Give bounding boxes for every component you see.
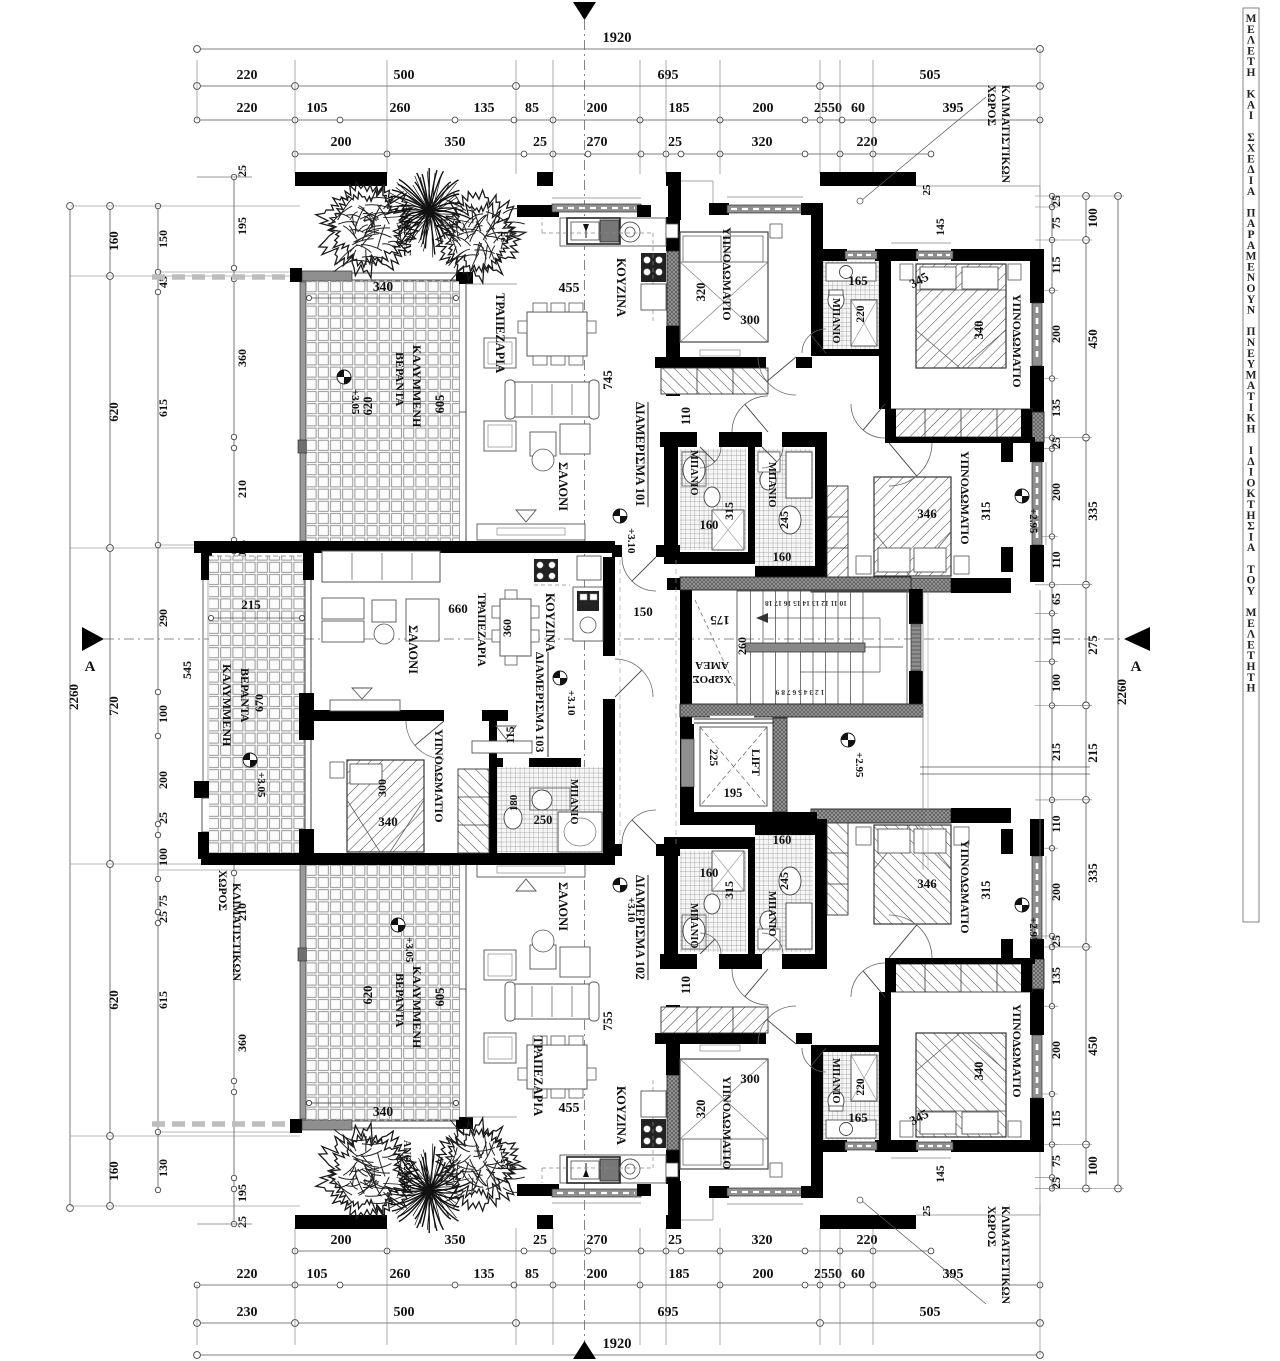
svg-text:25: 25	[235, 1216, 249, 1228]
svg-text:ΜΠΑΝΙΟ: ΜΠΑΝΙΟ	[688, 903, 699, 949]
svg-text:220: 220	[237, 101, 258, 116]
svg-text:340: 340	[373, 279, 394, 294]
svg-text:145: 145	[935, 218, 947, 236]
svg-text:340: 340	[972, 1062, 986, 1081]
svg-text:+3.05: +3.05	[403, 937, 415, 963]
svg-text:Ι: Ι	[1249, 110, 1254, 122]
svg-text:ΤΡΑΠΕΖΑΡΙΑ: ΤΡΑΠΕΖΑΡΙΑ	[531, 1036, 545, 1116]
svg-text:360: 360	[235, 349, 249, 367]
svg-text:ΥΠΝΟΔΩΜΑΤΙΟ: ΥΠΝΟΔΩΜΑΤΙΟ	[720, 227, 734, 321]
svg-text:ΑΝΘΩΝΑΣ: ΑΝΘΩΝΑΣ	[401, 1140, 412, 1192]
svg-text:200: 200	[1049, 1041, 1063, 1059]
svg-text:25: 25	[668, 1233, 682, 1248]
svg-text:695: 695	[658, 68, 679, 83]
svg-text:315: 315	[979, 502, 993, 521]
svg-text:346: 346	[917, 506, 937, 521]
svg-text:60: 60	[851, 1267, 865, 1282]
svg-text:+2.95: +2.95	[1027, 508, 1039, 534]
svg-text:ΚΛΙΜΑΤΙΣΤΙΚΩΝ: ΚΛΙΜΑΤΙΣΤΙΚΩΝ	[230, 883, 242, 982]
svg-text:ΧΩΡΟΣ: ΧΩΡΟΣ	[216, 870, 228, 911]
svg-text:260: 260	[735, 637, 749, 655]
svg-text:65: 65	[1049, 593, 1063, 605]
svg-text:60: 60	[851, 101, 865, 116]
svg-text:745: 745	[600, 370, 615, 390]
svg-text:505: 505	[920, 1305, 941, 1320]
svg-text:200: 200	[1049, 325, 1063, 343]
svg-text:85: 85	[525, 1267, 539, 1282]
svg-text:220: 220	[237, 1267, 258, 1282]
svg-text:115: 115	[1049, 1110, 1063, 1127]
svg-text:A: A	[85, 659, 96, 675]
svg-text:670: 670	[252, 694, 266, 712]
svg-text:160: 160	[773, 833, 792, 847]
svg-text:110: 110	[1049, 815, 1063, 832]
svg-text:ΜΠΑΝΙΟ: ΜΠΑΝΙΟ	[766, 891, 777, 937]
svg-text:100: 100	[1085, 1156, 1100, 1176]
svg-text:25: 25	[1049, 195, 1063, 207]
svg-text:25: 25	[1049, 935, 1063, 947]
svg-text:620: 620	[106, 402, 121, 422]
svg-text:10 11 12 13 14 15 16 17 18: 10 11 12 13 14 15 16 17 18	[765, 599, 847, 608]
svg-text:Υ: Υ	[1247, 585, 1256, 597]
svg-text:720: 720	[106, 696, 121, 716]
svg-text:ΚΛΙΜΑΤΙΣΤΙΚΩΝ: ΚΛΙΜΑΤΙΣΤΙΚΩΝ	[999, 85, 1011, 184]
svg-text:505: 505	[920, 68, 941, 83]
svg-text:185: 185	[669, 1267, 690, 1282]
svg-text:315: 315	[722, 502, 736, 520]
svg-text:346: 346	[917, 876, 937, 891]
svg-text:+2.95: +2.95	[853, 752, 865, 778]
svg-text:135: 135	[1049, 967, 1063, 985]
svg-text:2550: 2550	[814, 1267, 842, 1282]
svg-text:ΥΠΝΟΔΩΜΑΤΙΟ: ΥΠΝΟΔΩΜΑΤΙΟ	[1010, 294, 1024, 388]
svg-text:350: 350	[445, 135, 466, 150]
svg-text:ΣΑΛΟΝΙ: ΣΑΛΟΝΙ	[556, 882, 570, 931]
svg-text:75: 75	[1049, 217, 1063, 229]
svg-text:Α: Α	[1247, 186, 1256, 198]
svg-text:160: 160	[700, 518, 719, 532]
svg-text:110: 110	[679, 976, 693, 994]
svg-text:545: 545	[180, 661, 194, 679]
svg-text:25: 25	[921, 1205, 933, 1217]
svg-text:ΔΙΑΜΕΡΙΣΜΑ 101: ΔΙΑΜΕΡΙΣΜΑ 101	[633, 402, 647, 507]
svg-text:395: 395	[943, 1267, 964, 1282]
svg-text:360: 360	[235, 1034, 249, 1052]
svg-text:ΒΕΡΑΝΤΑ: ΒΕΡΑΝΤΑ	[393, 973, 407, 1028]
svg-text:605: 605	[433, 988, 447, 1007]
svg-text:25: 25	[156, 812, 170, 824]
svg-text:2260: 2260	[66, 684, 81, 710]
svg-text:ΜΠΑΝΙΟ: ΜΠΑΝΙΟ	[568, 779, 579, 825]
svg-text:Ν: Ν	[1247, 305, 1256, 317]
svg-text:200: 200	[753, 101, 774, 116]
svg-text:340: 340	[378, 814, 398, 829]
svg-text:100: 100	[156, 848, 170, 866]
svg-text:2550: 2550	[814, 101, 842, 116]
svg-text:25: 25	[921, 184, 933, 196]
svg-text:695: 695	[658, 1305, 679, 1320]
svg-text:335: 335	[1085, 501, 1100, 521]
svg-text:25: 25	[156, 911, 170, 923]
svg-text:200: 200	[331, 1233, 352, 1248]
svg-text:ΤΡΑΠΕΖΑΡΙΑ: ΤΡΑΠΕΖΑΡΙΑ	[493, 293, 507, 373]
svg-text:ΜΠΑΝΙΟ: ΜΠΑΝΙΟ	[688, 450, 699, 496]
svg-text:25: 25	[499, 231, 511, 243]
svg-text:450: 450	[1085, 329, 1100, 349]
svg-text:ΜΠΑΝΙΟ: ΜΠΑΝΙΟ	[766, 462, 777, 508]
svg-text:245: 245	[777, 511, 791, 529]
svg-text:615: 615	[156, 991, 170, 1009]
svg-text:75: 75	[1049, 1155, 1063, 1167]
svg-text:25: 25	[1049, 437, 1063, 449]
svg-text:200: 200	[753, 1267, 774, 1282]
svg-text:ΔΙΑΜΕΡΙΣΜΑ 102: ΔΙΑΜΕΡΙΣΜΑ 102	[633, 875, 647, 980]
svg-text:ΚΑΛΥΜΜΕΝΗ: ΚΑΛΥΜΜΕΝΗ	[410, 966, 424, 1049]
svg-text:200: 200	[587, 1267, 608, 1282]
svg-text:195: 195	[724, 786, 743, 800]
svg-text:110: 110	[1049, 551, 1063, 568]
svg-text:455: 455	[559, 281, 580, 296]
svg-text:320: 320	[694, 1100, 708, 1119]
svg-text:450: 450	[1085, 1036, 1100, 1056]
svg-text:25: 25	[533, 1233, 547, 1248]
svg-text:115: 115	[1049, 256, 1063, 273]
svg-text:135: 135	[474, 101, 495, 116]
svg-text:ΔΙΑΜΕΡΙΣΜΑ 103: ΔΙΑΜΕΡΙΣΜΑ 103	[533, 652, 547, 752]
svg-text:210: 210	[235, 480, 249, 498]
svg-text:215: 215	[1049, 743, 1063, 761]
svg-text:ΚΟΥΖΙΝΑ: ΚΟΥΖΙΝΑ	[614, 1086, 628, 1145]
svg-text:1 2 3 4 5 6 7 8 9: 1 2 3 4 5 6 7 8 9	[775, 688, 824, 697]
svg-text:25: 25	[668, 135, 682, 150]
svg-text:ΑΜΕΑ: ΑΜΕΑ	[695, 659, 729, 671]
svg-text:200: 200	[331, 135, 352, 150]
svg-text:605: 605	[433, 395, 447, 414]
svg-text:250: 250	[534, 813, 553, 827]
svg-text:ΥΠΝΟΔΩΜΑΤΙΟ: ΥΠΝΟΔΩΜΑΤΙΟ	[432, 729, 446, 823]
svg-text:2260: 2260	[1114, 679, 1129, 705]
svg-text:180: 180	[508, 794, 520, 811]
svg-text:320: 320	[752, 1233, 773, 1248]
svg-text:300: 300	[375, 779, 389, 797]
svg-text:25: 25	[533, 135, 547, 150]
svg-text:215: 215	[1085, 743, 1100, 763]
svg-text:25: 25	[235, 165, 249, 177]
svg-text:175: 175	[710, 613, 730, 628]
svg-text:160: 160	[106, 1161, 121, 1181]
svg-text:A: A	[1131, 659, 1142, 675]
svg-text:260: 260	[390, 1267, 411, 1282]
svg-text:75: 75	[156, 895, 170, 907]
svg-text:Η: Η	[1247, 67, 1256, 79]
svg-text:LIFT: LIFT	[749, 749, 761, 776]
svg-text:275: 275	[1085, 635, 1100, 655]
svg-text:270: 270	[587, 135, 608, 150]
svg-text:ΥΠΝΟΔΩΜΑΤΙΟ: ΥΠΝΟΔΩΜΑΤΙΟ	[958, 840, 972, 934]
svg-text:455: 455	[559, 1101, 580, 1116]
svg-text:755: 755	[600, 1011, 615, 1031]
svg-text:160: 160	[106, 231, 121, 251]
svg-text:ΚΑΛΥΜΜΕΝΗ: ΚΑΛΥΜΜΕΝΗ	[410, 345, 424, 428]
svg-text:620: 620	[361, 986, 375, 1005]
svg-text:270: 270	[587, 1233, 608, 1248]
svg-text:ΜΠΑΝΙΟ: ΜΠΑΝΙΟ	[830, 298, 841, 344]
svg-text:ΚΑΛΥΜΜΕΝΗ: ΚΑΛΥΜΜΕΝΗ	[220, 664, 234, 747]
svg-text:500: 500	[394, 68, 415, 83]
svg-text:ΧΩΡΟΣ: ΧΩΡΟΣ	[692, 673, 731, 685]
svg-text:340: 340	[972, 321, 986, 340]
svg-text:315: 315	[979, 881, 993, 900]
svg-text:300: 300	[740, 1071, 760, 1086]
svg-text:ΜΠΑΝΙΟ: ΜΠΑΝΙΟ	[830, 1058, 841, 1104]
svg-text:115: 115	[503, 726, 517, 743]
svg-text:ΚΟΥΖΙΝΑ: ΚΟΥΖΙΝΑ	[543, 593, 557, 652]
svg-text:ΥΠΝΟΔΩΜΑΤΙΟ: ΥΠΝΟΔΩΜΑΤΙΟ	[1010, 1004, 1024, 1098]
svg-text:360: 360	[500, 619, 514, 637]
svg-text:225: 225	[707, 749, 719, 767]
svg-text:ΑΝΘΩΝΑΣ: ΑΝΘΩΝΑΣ	[401, 205, 412, 257]
svg-text:185: 185	[669, 101, 690, 116]
svg-text:135: 135	[1049, 399, 1063, 417]
svg-text:160: 160	[773, 550, 792, 564]
svg-text:215: 215	[241, 597, 261, 612]
svg-text:ΣΑΛΟΝΙ: ΣΑΛΟΝΙ	[406, 625, 420, 674]
svg-text:200: 200	[587, 101, 608, 116]
svg-text:100: 100	[156, 705, 170, 723]
svg-text:+3.10: +3.10	[625, 528, 637, 554]
svg-text:ΒΕΡΑΝΤΑ: ΒΕΡΑΝΤΑ	[238, 668, 252, 723]
svg-text:ΥΠΝΟΔΩΜΑΤΙΟ: ΥΠΝΟΔΩΜΑΤΙΟ	[720, 1076, 734, 1170]
svg-text:230: 230	[237, 1305, 258, 1320]
svg-text:130: 130	[156, 1159, 170, 1177]
svg-text:+3.05: +3.05	[255, 772, 267, 798]
svg-text:+3.10: +3.10	[565, 690, 577, 716]
svg-text:Α: Α	[1247, 542, 1256, 554]
svg-text:ΣΑΛΟΝΙ: ΣΑΛΟΝΙ	[556, 462, 570, 511]
svg-text:620: 620	[361, 397, 375, 416]
svg-text:220: 220	[857, 1233, 878, 1248]
svg-text:220: 220	[857, 135, 878, 150]
svg-text:135: 135	[474, 1267, 495, 1282]
svg-text:260: 260	[390, 101, 411, 116]
svg-text:Η: Η	[1247, 423, 1256, 435]
svg-text:25: 25	[1049, 1177, 1063, 1189]
svg-text:145: 145	[935, 1165, 947, 1183]
svg-text:395: 395	[943, 101, 964, 116]
svg-text:ΚΟΥΖΙΝΑ: ΚΟΥΖΙΝΑ	[614, 258, 628, 317]
svg-text:220: 220	[855, 1078, 867, 1096]
svg-text:350: 350	[445, 1233, 466, 1248]
svg-text:ΧΩΡΟΣ: ΧΩΡΟΣ	[985, 85, 997, 126]
svg-text:300: 300	[740, 312, 760, 327]
svg-text:ΚΛΙΜΑΤΙΣΤΙΚΩΝ: ΚΛΙΜΑΤΙΣΤΙΚΩΝ	[999, 1206, 1011, 1305]
svg-text:110: 110	[1049, 628, 1063, 645]
svg-text:320: 320	[694, 283, 708, 302]
svg-text:110: 110	[679, 407, 693, 425]
svg-text:100: 100	[1085, 208, 1100, 228]
svg-text:500: 500	[394, 1305, 415, 1320]
svg-text:220: 220	[237, 68, 258, 83]
svg-text:245: 245	[777, 872, 791, 890]
svg-text:105: 105	[307, 1267, 328, 1282]
svg-text:620: 620	[106, 990, 121, 1010]
svg-text:195: 195	[235, 1184, 249, 1202]
svg-text:100: 100	[1049, 674, 1063, 692]
svg-text:25: 25	[499, 1158, 511, 1170]
svg-text:1920: 1920	[603, 30, 632, 46]
svg-text:160: 160	[700, 866, 719, 880]
svg-text:320: 320	[752, 135, 773, 150]
svg-text:150: 150	[156, 230, 170, 248]
svg-text:615: 615	[156, 399, 170, 417]
svg-text:220: 220	[855, 305, 867, 323]
svg-text:+3.10: +3.10	[625, 897, 637, 923]
svg-text:200: 200	[1049, 483, 1063, 501]
svg-text:200: 200	[156, 771, 170, 789]
svg-text:290: 290	[156, 609, 170, 627]
svg-text:150: 150	[633, 604, 653, 619]
svg-text:105: 105	[307, 101, 328, 116]
svg-text:+2.95: +2.95	[1027, 917, 1039, 943]
svg-text:ΧΩΡΟΣ: ΧΩΡΟΣ	[985, 1206, 997, 1247]
svg-text:660: 660	[448, 601, 468, 616]
svg-text:165: 165	[848, 273, 868, 288]
svg-text:ΤΡΑΠΕΖΑΡΙΑ: ΤΡΑΠΕΖΑΡΙΑ	[475, 593, 487, 667]
svg-text:315: 315	[722, 881, 736, 899]
svg-text:335: 335	[1085, 863, 1100, 883]
svg-text:340: 340	[373, 1104, 394, 1119]
svg-text:Η: Η	[1247, 683, 1256, 695]
svg-text:ΒΕΡΑΝΤΑ: ΒΕΡΑΝΤΑ	[393, 352, 407, 407]
svg-text:165: 165	[848, 1110, 868, 1125]
svg-text:200: 200	[1049, 883, 1063, 901]
svg-text:ΥΠΝΟΔΩΜΑΤΙΟ: ΥΠΝΟΔΩΜΑΤΙΟ	[958, 451, 972, 545]
svg-text:1920: 1920	[603, 1336, 632, 1352]
svg-text:195: 195	[235, 217, 249, 235]
svg-text:85: 85	[525, 101, 539, 116]
svg-text:+3.05: +3.05	[349, 389, 361, 415]
